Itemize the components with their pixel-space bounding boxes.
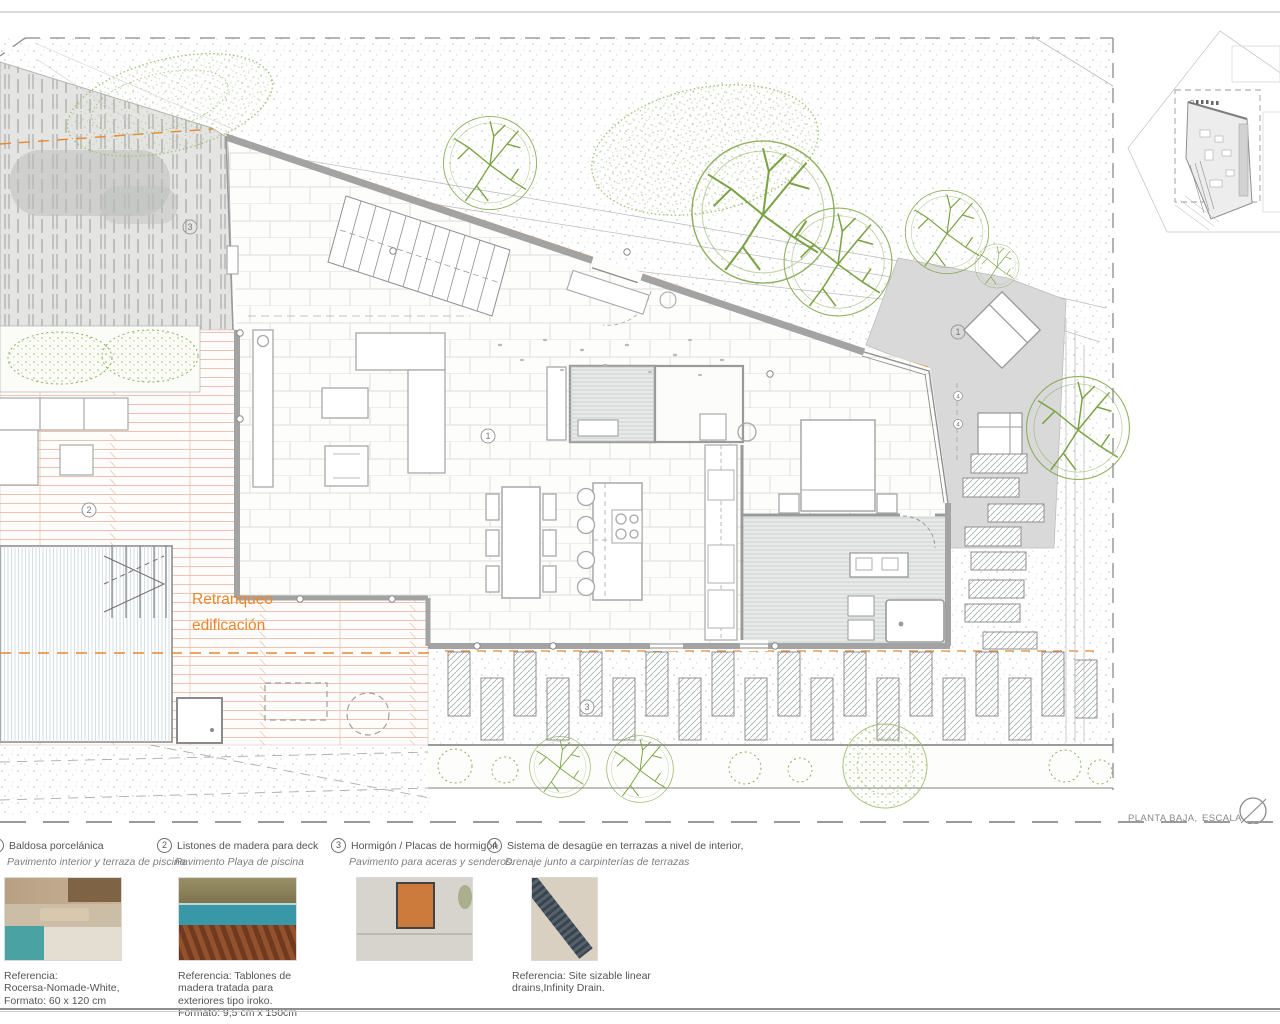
photo-fragment xyxy=(68,878,121,902)
photo-fragment xyxy=(458,885,472,910)
legend-subtitle: Drenaje junto a carpinterías de terrazas xyxy=(505,856,817,868)
terrace-chair xyxy=(978,413,1022,455)
legend-item-1: 1Baldosa porcelánica Pavimento interior … xyxy=(0,836,179,1007)
south-west-gravel xyxy=(0,745,430,815)
ref-line: Referencia: xyxy=(4,970,179,982)
stool xyxy=(578,489,595,506)
toilet xyxy=(700,414,726,440)
legend-number-badge: 2 xyxy=(157,838,172,853)
svg-text:4: 4 xyxy=(956,422,960,429)
marker-concrete-path: 3 xyxy=(580,700,594,714)
ref-line: madera tratada para xyxy=(178,982,352,994)
photo-fragment xyxy=(40,908,89,921)
bathtub xyxy=(886,600,944,642)
photo-fragment xyxy=(357,933,472,935)
coffee-table xyxy=(322,388,368,418)
tree-mass xyxy=(843,724,927,808)
sideboard xyxy=(253,330,273,487)
wc xyxy=(848,596,874,616)
legend-photo-1 xyxy=(4,877,122,961)
legend-number-badge: 1 xyxy=(0,838,4,853)
north-symbol xyxy=(1240,798,1266,824)
ref-line: Formato: 60 x 120 cm xyxy=(4,995,179,1007)
photo-fragment xyxy=(44,927,121,960)
legend-title: Listones de madera para deck xyxy=(177,840,318,852)
vanity xyxy=(850,553,908,577)
legend-number-badge: 3 xyxy=(331,838,346,853)
legend-subtitle: Pavimento interior y terraza de piscina xyxy=(7,856,179,868)
photo-fragment xyxy=(396,882,435,929)
svg-text:2: 2 xyxy=(86,505,91,515)
svg-text:1: 1 xyxy=(485,431,490,441)
wc-room xyxy=(655,366,743,442)
marker-drain-2: 4 xyxy=(954,420,963,429)
legend-photo-2 xyxy=(178,877,297,961)
sofa xyxy=(356,333,445,370)
sink xyxy=(578,420,618,436)
armchair xyxy=(325,446,368,486)
svg-text:4: 4 xyxy=(956,394,960,401)
photo-fragment xyxy=(179,878,296,903)
ref-line: Referencia: Site sizable linear xyxy=(512,970,817,982)
fireplace xyxy=(258,336,269,347)
bathroom-upper xyxy=(570,366,743,442)
svg-text:1: 1 xyxy=(955,327,960,337)
planting-bed xyxy=(0,326,200,392)
legend-photo-4 xyxy=(531,877,598,961)
legend-title: Baldosa porcelánica xyxy=(9,840,104,852)
site-key-plan xyxy=(1128,31,1280,232)
legend-number-badge: 4 xyxy=(487,838,502,853)
stool xyxy=(578,552,595,569)
chair xyxy=(543,530,556,556)
floor-plan-drawing: 1 1 2 3 3 4 4 Retranqueo edificación xyxy=(0,0,1280,824)
legend-reference: Referencia: Rocersa-Nomade-White, Format… xyxy=(4,970,179,1007)
legend-item-4: 4Sistema de desagüe en terrazas a nivel … xyxy=(487,836,817,995)
shadow-blob xyxy=(100,186,178,224)
bidet xyxy=(848,620,874,640)
sheet-bottom-rule xyxy=(0,1008,1280,1010)
legend-head: 4Sistema de desagüe en terrazas a nivel … xyxy=(487,836,817,854)
ref-line: Rocersa-Nomade-White, xyxy=(4,982,179,994)
photo-fragment xyxy=(5,926,44,960)
equipment-pad xyxy=(177,698,222,743)
photo-fragment xyxy=(531,877,593,959)
legend-head: 2Listones de madera para deck xyxy=(157,836,352,854)
chair xyxy=(543,566,556,592)
nightstand xyxy=(779,494,799,513)
dining-table xyxy=(502,487,540,598)
marker-deck: 2 xyxy=(82,503,96,517)
nightstand xyxy=(877,494,897,513)
bed xyxy=(801,420,875,511)
legend-reference: Referencia: Tablones de madera tratada p… xyxy=(178,970,352,1020)
marker-tile-interior: 1 xyxy=(481,429,495,443)
svg-text:3: 3 xyxy=(584,702,589,712)
legend-title: Hormigón / Placas de hormigón xyxy=(351,840,498,852)
legend-subtitle: Pavimento Playa de piscina xyxy=(175,856,352,868)
chair xyxy=(486,530,499,556)
chair xyxy=(543,494,556,520)
sofa-chaise xyxy=(408,370,445,473)
photo-fragment xyxy=(179,925,296,960)
bathroom-ensuite xyxy=(744,516,948,644)
marker-drain-1: 4 xyxy=(954,392,963,401)
legend-title: Sistema de desagüe en terrazas a nivel d… xyxy=(507,840,743,852)
stool xyxy=(578,517,595,534)
legend-head: 1Baldosa porcelánica xyxy=(0,836,179,854)
svg-text:Retranqueo: Retranqueo xyxy=(192,591,273,608)
legend-item-2: 2Listones de madera para deck Pavimento … xyxy=(157,836,352,1020)
ref-line: drains,Infinity Drain. xyxy=(512,982,817,994)
svg-text:3: 3 xyxy=(187,222,192,232)
ref-line: exteriores tipo iroko. xyxy=(178,995,352,1007)
cooktop xyxy=(612,510,642,543)
ref-line: Referencia: Tablones de xyxy=(178,970,352,982)
legend-reference: Referencia: Site sizable linear drains,I… xyxy=(512,970,817,995)
photo-fragment xyxy=(179,903,296,927)
side-table xyxy=(60,445,93,475)
pool xyxy=(0,546,172,742)
svg-text:edificación: edificación xyxy=(192,617,265,634)
drawing-sheet: 1 1 2 3 3 4 4 Retranqueo edificación xyxy=(0,0,1280,1024)
kitchen-counter xyxy=(547,367,566,440)
legend-photo-3 xyxy=(356,877,473,961)
chair xyxy=(486,566,499,592)
chair xyxy=(486,494,499,520)
stool xyxy=(578,579,595,596)
sheet-bottom-rule-shadow xyxy=(0,1011,1280,1012)
